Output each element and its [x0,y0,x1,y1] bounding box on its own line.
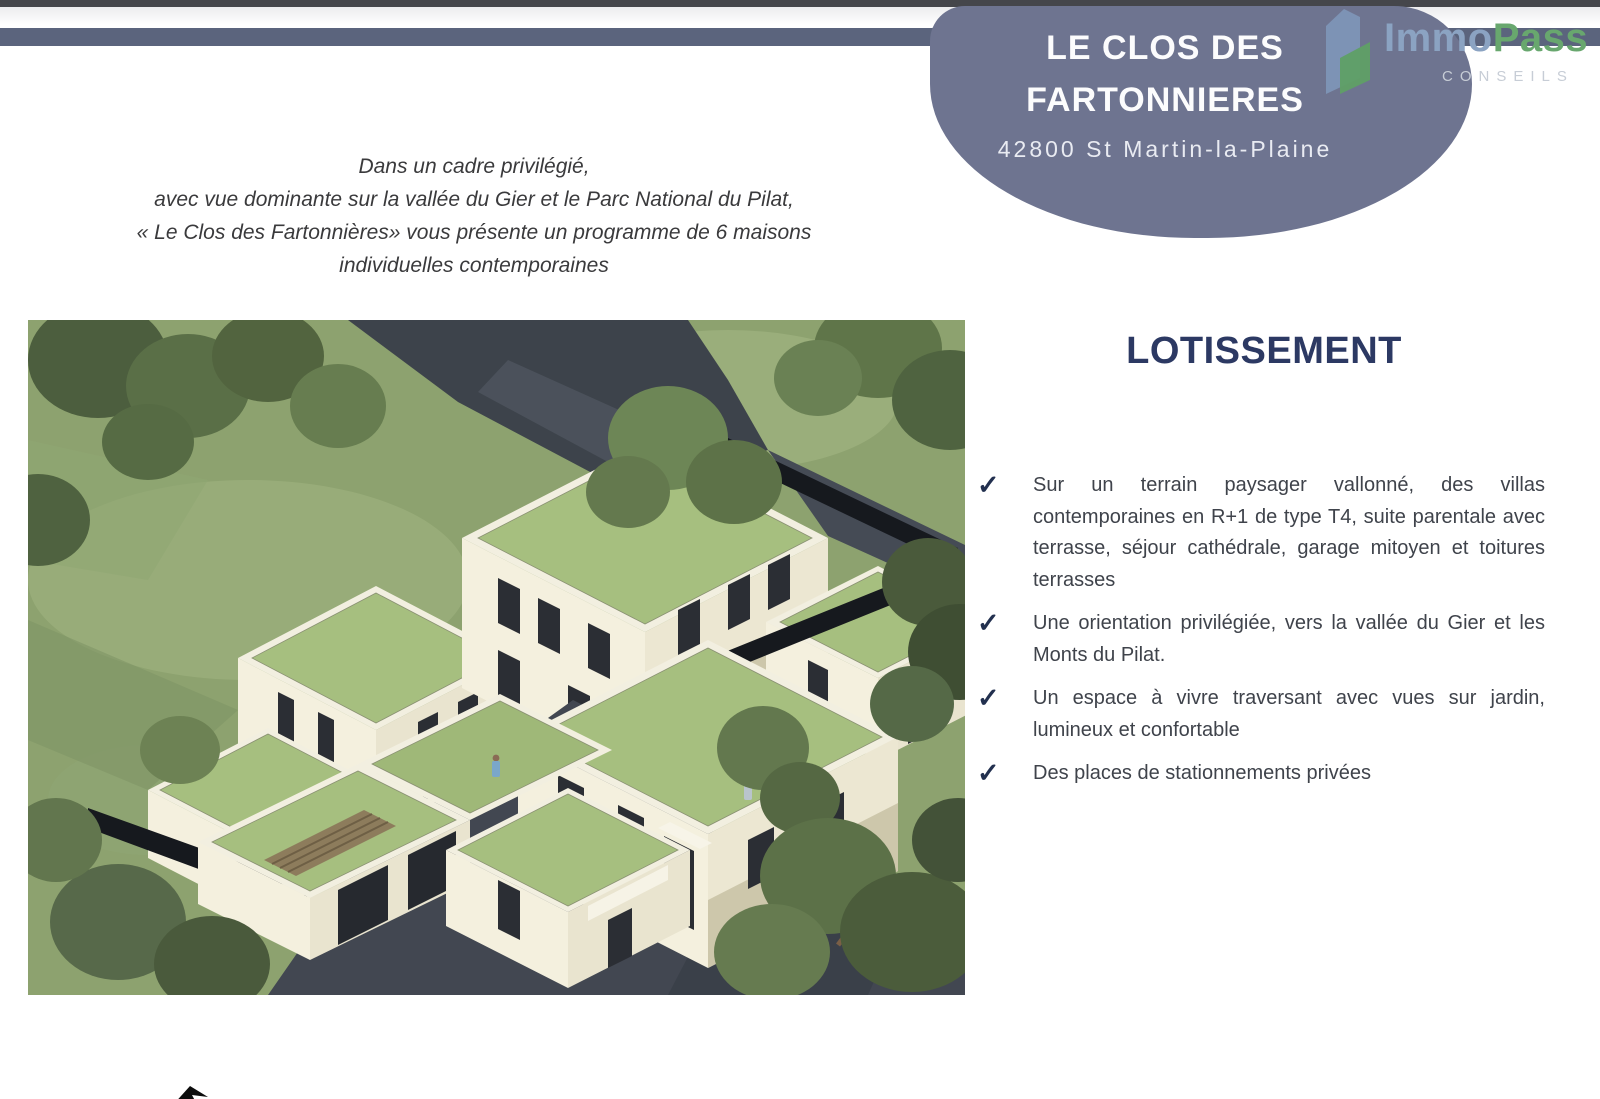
list-item: ✓ Sur un terrain paysager vallonné, des … [977,470,1545,596]
intro-line3: « Le Clos des Fartonnières» vous présent… [40,216,908,249]
intro-paragraph: Dans un cadre privilégié, avec vue domin… [40,150,908,282]
aerial-render-image [28,320,965,995]
intro-line1: Dans un cadre privilégié, [40,150,908,183]
logo-wordmark: ImmoPass [1384,16,1588,61]
list-item-text: Un espace à vivre traversant avec vues s… [1033,687,1545,741]
intro-line4: individuelles contemporaines [40,249,908,282]
building-icon [1318,4,1378,98]
check-icon: ✓ [977,608,1000,640]
north-arrow-icon [172,1084,212,1099]
logo-immo: Immo [1384,16,1493,60]
list-item-text: Des places de stationnements privées [1033,762,1371,784]
feature-list: ✓ Sur un terrain paysager vallonné, des … [977,470,1545,802]
logo-subtitle: CONSEILS [1442,68,1574,85]
list-item: ✓ Une orientation privilégiée, vers la v… [977,608,1545,671]
list-item: ✓ Un espace à vivre traversant avec vues… [977,683,1545,746]
check-icon: ✓ [977,470,1000,502]
list-item: ✓ Des places de stationnements privées [977,758,1545,790]
list-item-text: Sur un terrain paysager vallonné, des vi… [1033,474,1545,591]
section-title: LOTISSEMENT [964,330,1564,373]
list-item-text: Une orientation privilégiée, vers la val… [1033,612,1545,666]
person [492,755,500,777]
project-address: 42800 St Martin-la-Plaine [930,136,1400,163]
immopass-logo: ImmoPass CONSEILS [1318,2,1600,106]
check-icon: ✓ [977,758,1000,790]
intro-line2: avec vue dominante sur la vallée du Gier… [40,183,908,216]
brochure-page: LE CLOS DES FARTONNIERES 42800 St Martin… [0,0,1600,1099]
check-icon: ✓ [977,683,1000,715]
logo-pass: Pass [1493,16,1588,60]
